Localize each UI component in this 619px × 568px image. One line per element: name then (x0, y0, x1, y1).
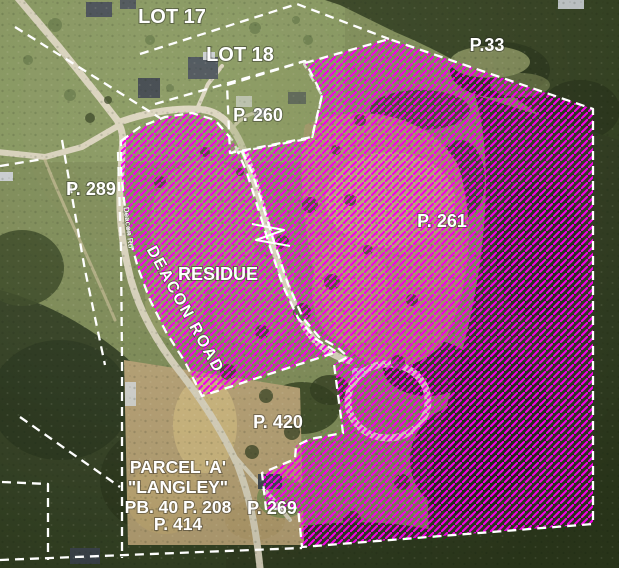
aerial-parcel-map[interactable]: LOT 17 LOT 18 P.33 P. 260 P. 289 P. 261 … (0, 0, 619, 568)
label-p33: P.33 (470, 35, 505, 55)
label-p260: P. 260 (233, 105, 283, 125)
label-parcel-a-1: PARCEL 'A' (130, 457, 226, 477)
label-parcel-a-2: "LANGLEY" (128, 477, 228, 497)
label-p420: P. 420 (253, 412, 303, 432)
label-residue: RESIDUE (178, 264, 258, 284)
label-lot-18: LOT 18 (206, 44, 274, 66)
label-p261: P. 261 (417, 211, 467, 231)
label-lot-17: LOT 17 (138, 6, 206, 28)
map-canvas[interactable]: LOT 17 LOT 18 P.33 P. 260 P. 289 P. 261 … (0, 0, 619, 568)
label-parcel-a-4: P. 414 (154, 514, 203, 534)
label-p269: P. 269 (247, 498, 297, 518)
label-p289: P. 289 (66, 179, 116, 199)
